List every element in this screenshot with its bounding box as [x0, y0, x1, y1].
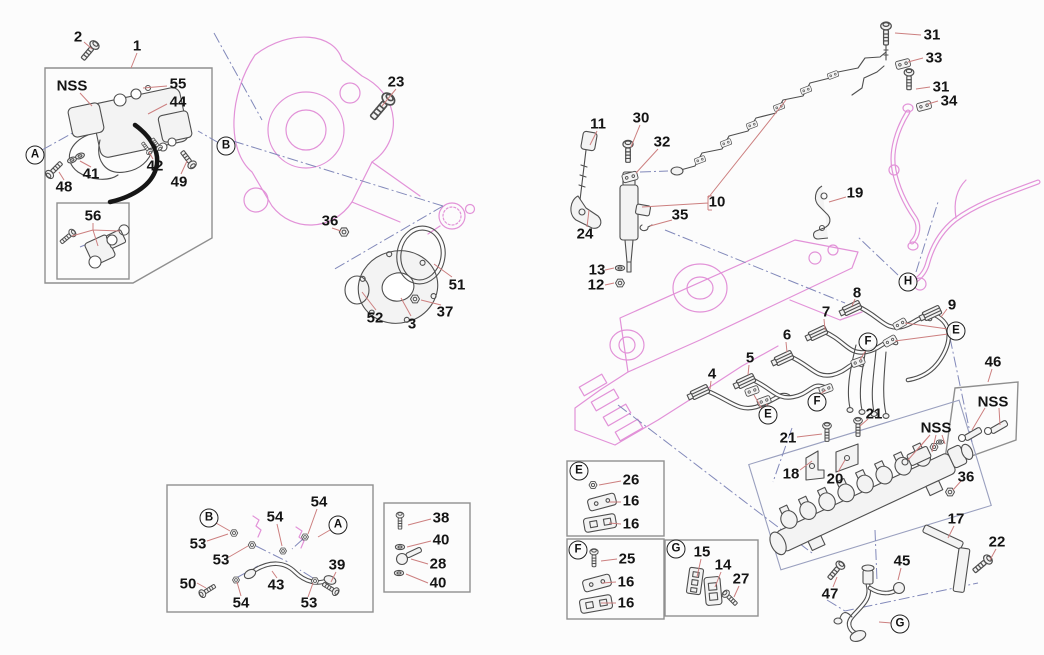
part-callout-52[interactable]: 52: [367, 311, 384, 326]
view-marker-F[interactable]: F: [808, 393, 827, 412]
part-callout-40[interactable]: 40: [430, 576, 447, 591]
view-marker-B[interactable]: B: [200, 509, 219, 528]
part-callout-6[interactable]: 6: [783, 328, 791, 343]
part-callout-54[interactable]: 54: [233, 596, 250, 611]
part-callout-19[interactable]: 19: [847, 186, 864, 201]
part-callout-50[interactable]: 50: [180, 577, 197, 592]
part-callout-44[interactable]: 44: [170, 95, 187, 110]
part-callout-10[interactable]: 10: [709, 195, 726, 210]
part-callout-8[interactable]: 8: [853, 286, 861, 301]
part-callout-38[interactable]: 38: [433, 511, 450, 526]
part-callout-40[interactable]: 40: [433, 533, 450, 548]
part-callout-23[interactable]: 23: [388, 75, 405, 90]
part-callout-14[interactable]: 14: [715, 558, 732, 573]
part-callout-53[interactable]: 53: [190, 537, 207, 552]
part-callout-39[interactable]: 39: [329, 558, 346, 573]
part-callout-35[interactable]: 35: [672, 208, 689, 223]
part-callout-54[interactable]: 54: [267, 510, 284, 525]
part-callout-47[interactable]: 47: [822, 587, 839, 602]
nss-label: NSS: [57, 79, 88, 94]
part-callout-3[interactable]: 3: [408, 317, 416, 332]
nss-label: NSS: [921, 421, 952, 436]
part-callout-42[interactable]: 42: [147, 159, 164, 174]
part-callout-28[interactable]: 28: [430, 557, 447, 572]
view-marker-E[interactable]: E: [570, 462, 589, 481]
view-marker-E[interactable]: E: [947, 322, 966, 341]
view-marker-F[interactable]: F: [569, 541, 588, 560]
part-callout-12[interactable]: 12: [588, 278, 605, 293]
part-callout-34[interactable]: 34: [941, 94, 958, 109]
part-callout-32[interactable]: 32: [654, 135, 671, 150]
part-callout-16[interactable]: 16: [623, 494, 640, 509]
part-callout-55[interactable]: 55: [170, 77, 187, 92]
part-callout-5[interactable]: 5: [746, 351, 754, 366]
view-marker-A[interactable]: A: [329, 516, 348, 535]
part-callout-21[interactable]: 21: [780, 431, 797, 446]
part-callout-11[interactable]: 11: [590, 117, 606, 132]
part-callout-41[interactable]: 41: [83, 167, 100, 182]
part-callout-26[interactable]: 26: [623, 473, 640, 488]
part-callout-24[interactable]: 24: [577, 227, 594, 242]
part-callout-16[interactable]: 16: [618, 596, 635, 611]
part-callout-4[interactable]: 4: [708, 367, 716, 382]
part-callout-33[interactable]: 33: [926, 51, 943, 66]
callout-layer: 2155442342494148563651523371130321035241…: [0, 0, 1044, 655]
part-callout-21[interactable]: 21: [866, 407, 883, 422]
part-callout-25[interactable]: 25: [619, 552, 636, 567]
view-marker-H[interactable]: H: [899, 273, 918, 292]
part-callout-27[interactable]: 27: [733, 572, 750, 587]
part-callout-48[interactable]: 48: [56, 180, 73, 195]
part-callout-53[interactable]: 53: [213, 553, 230, 568]
parts-diagram-canvas: 2155442342494148563651523371130321035241…: [0, 0, 1044, 655]
view-marker-G[interactable]: G: [891, 615, 910, 634]
view-marker-G[interactable]: G: [667, 540, 686, 559]
part-callout-16[interactable]: 16: [618, 575, 635, 590]
part-callout-36[interactable]: 36: [322, 214, 339, 229]
part-callout-43[interactable]: 43: [268, 578, 285, 593]
part-callout-31[interactable]: 31: [924, 28, 941, 43]
part-callout-30[interactable]: 30: [633, 111, 650, 126]
nss-label: NSS: [978, 395, 1009, 410]
view-marker-A[interactable]: A: [26, 146, 45, 165]
part-callout-45[interactable]: 45: [894, 554, 911, 569]
part-callout-54[interactable]: 54: [311, 495, 328, 510]
part-callout-16[interactable]: 16: [623, 517, 640, 532]
view-marker-F[interactable]: F: [859, 333, 878, 352]
part-callout-15[interactable]: 15: [694, 545, 711, 560]
view-marker-E[interactable]: E: [759, 406, 778, 425]
part-callout-46[interactable]: 46: [985, 355, 1002, 370]
part-callout-20[interactable]: 20: [827, 472, 844, 487]
part-callout-49[interactable]: 49: [171, 175, 188, 190]
part-callout-17[interactable]: 17: [948, 512, 965, 527]
part-callout-53[interactable]: 53: [301, 596, 318, 611]
part-callout-56[interactable]: 56: [85, 209, 102, 224]
part-callout-7[interactable]: 7: [822, 305, 830, 320]
part-callout-1[interactable]: 1: [133, 39, 141, 54]
part-callout-2[interactable]: 2: [74, 30, 82, 45]
part-callout-9[interactable]: 9: [948, 298, 956, 313]
view-marker-B[interactable]: B: [217, 137, 236, 156]
part-callout-51[interactable]: 51: [449, 278, 466, 293]
part-callout-37[interactable]: 37: [437, 305, 454, 320]
part-callout-18[interactable]: 18: [783, 467, 800, 482]
part-callout-22[interactable]: 22: [989, 535, 1006, 550]
part-callout-36[interactable]: 36: [958, 470, 975, 485]
part-callout-13[interactable]: 13: [589, 263, 606, 278]
